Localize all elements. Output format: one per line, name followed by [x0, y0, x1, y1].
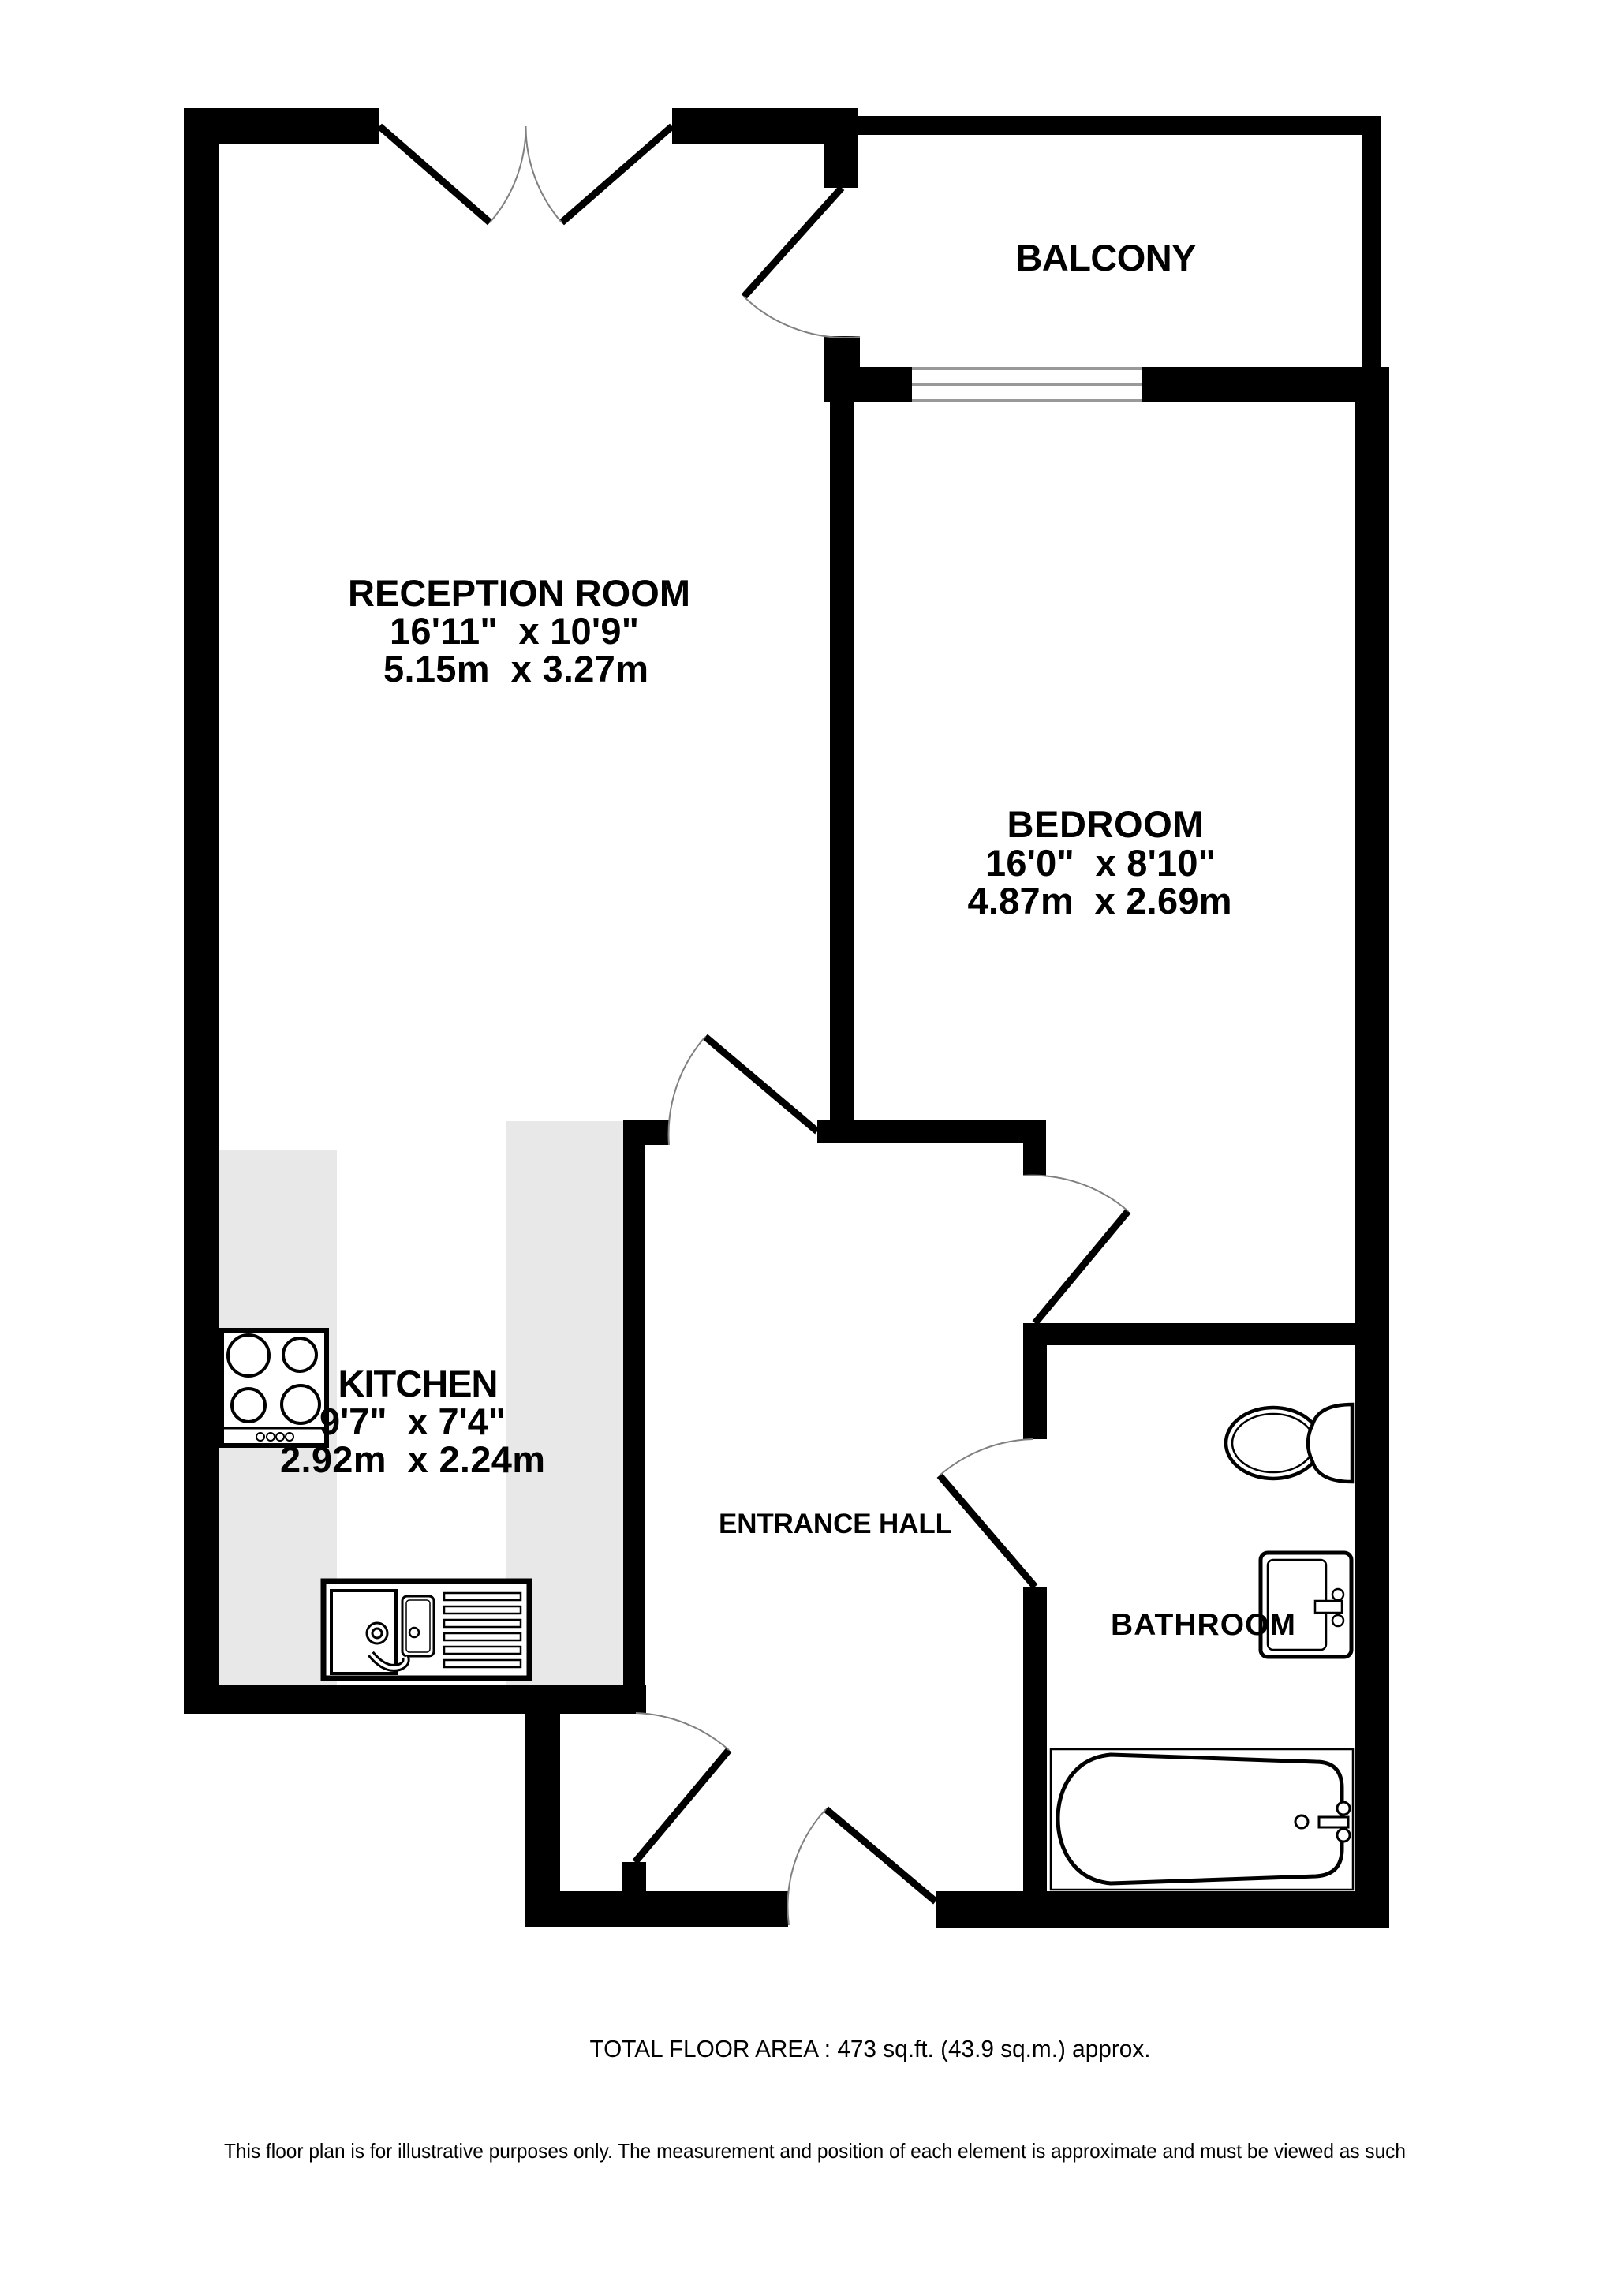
svg-text:9'7" x 7'4": 9'7" x 7'4" — [319, 1400, 506, 1442]
svg-text:BALCONY: BALCONY — [1016, 237, 1197, 279]
svg-text:16'0" x 8'10": 16'0" x 8'10" — [985, 842, 1216, 884]
svg-text:TOTAL FLOOR AREA : 473 sq.ft.: TOTAL FLOOR AREA : 473 sq.ft. (43.9 sq.m… — [590, 2035, 1151, 2062]
svg-text:4.87m x 2.69m: 4.87m x 2.69m — [968, 880, 1232, 922]
svg-text:5.15m x 3.27m: 5.15m x 3.27m — [383, 648, 648, 690]
svg-text:This floor plan is for illustr: This floor plan is for illustrative purp… — [224, 2139, 1406, 2163]
svg-text:KITCHEN: KITCHEN — [338, 1363, 499, 1404]
svg-text:BATHROOM: BATHROOM — [1111, 1608, 1295, 1642]
svg-text:BEDROOM: BEDROOM — [1007, 803, 1204, 845]
svg-text:RECEPTION ROOM: RECEPTION ROOM — [348, 572, 690, 614]
svg-text:16'11" x 10'9": 16'11" x 10'9" — [390, 610, 639, 652]
svg-text:2.92m x 2.24m: 2.92m x 2.24m — [280, 1438, 545, 1480]
svg-text:ENTRANCE HALL: ENTRANCE HALL — [719, 1509, 952, 1539]
